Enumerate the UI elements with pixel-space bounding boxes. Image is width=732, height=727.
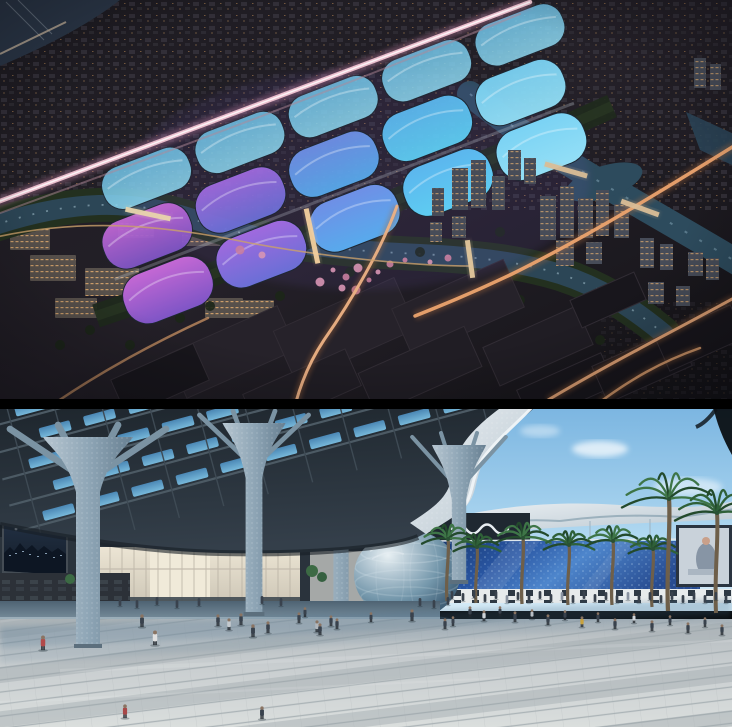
- person-body: [136, 600, 139, 608]
- person-shadow: [578, 627, 585, 629]
- person-body: [650, 623, 653, 629]
- person-shadow: [441, 629, 448, 631]
- person-leg: [268, 630, 269, 633]
- person-body: [261, 596, 264, 604]
- person-leg: [687, 630, 688, 633]
- person-leg: [43, 646, 45, 650]
- person-shadow: [302, 617, 308, 619]
- person-leg: [652, 628, 653, 631]
- column-base: [74, 644, 102, 648]
- person-body: [605, 592, 608, 600]
- person-head: [721, 624, 724, 627]
- person-shadow: [684, 633, 691, 635]
- person-body: [451, 591, 454, 599]
- person-head: [330, 615, 333, 618]
- person-body: [41, 639, 46, 647]
- person-head: [633, 613, 636, 616]
- person-leg: [547, 622, 548, 625]
- person-leg: [316, 629, 317, 632]
- person-head: [304, 607, 307, 610]
- person-body: [531, 612, 534, 617]
- person-leg: [304, 614, 305, 617]
- person-leg: [336, 626, 337, 629]
- person-leg: [499, 613, 500, 616]
- person-leg: [548, 622, 549, 625]
- person-leg: [319, 632, 320, 635]
- person-body: [260, 709, 264, 716]
- person-head: [266, 621, 269, 624]
- person-body: [669, 618, 672, 623]
- palm-crown: [446, 537, 450, 541]
- person-body: [239, 616, 243, 622]
- person-body: [482, 613, 485, 619]
- person-shadow: [316, 634, 324, 636]
- column-base: [450, 580, 468, 584]
- person-head: [315, 620, 318, 623]
- person-body: [468, 609, 471, 615]
- person-leg: [670, 622, 671, 625]
- person-body: [715, 592, 718, 600]
- person-shadow: [237, 624, 245, 626]
- person-body: [297, 615, 300, 621]
- person-shadow: [214, 625, 222, 627]
- person-leg: [581, 624, 582, 627]
- person-leg: [597, 619, 598, 622]
- person-body: [119, 598, 122, 606]
- person-head: [514, 611, 517, 614]
- person-head: [547, 614, 550, 617]
- person-body: [539, 591, 542, 599]
- person-leg: [320, 632, 321, 635]
- person-leg: [411, 618, 412, 621]
- person-leg: [598, 619, 599, 622]
- person-body: [227, 621, 231, 627]
- person-leg: [688, 630, 689, 633]
- person-body: [462, 593, 465, 601]
- person-shadow: [38, 649, 48, 652]
- person-leg: [469, 614, 470, 617]
- person-head: [123, 704, 127, 708]
- person-body: [506, 595, 509, 603]
- person-shadow: [718, 635, 725, 637]
- vignette: [0, 0, 732, 401]
- palm-trunk: [522, 538, 524, 604]
- person-leg: [262, 715, 263, 719]
- person-leg: [299, 620, 300, 623]
- person-body: [583, 591, 586, 599]
- person-body: [266, 624, 270, 630]
- person-leg: [370, 619, 371, 622]
- person-head: [239, 613, 242, 616]
- person-shadow: [258, 718, 266, 720]
- person-shadow: [562, 620, 568, 622]
- person-body: [704, 595, 707, 603]
- palm-trunk: [447, 539, 449, 601]
- person-body: [580, 619, 583, 625]
- person-leg: [614, 626, 615, 629]
- person-body: [613, 621, 616, 627]
- person-head: [216, 614, 219, 617]
- person-leg: [142, 623, 143, 627]
- person-leg: [251, 633, 252, 637]
- person-body: [251, 627, 255, 634]
- palm-crown: [567, 543, 571, 547]
- person-body: [616, 595, 619, 603]
- person-head: [260, 706, 263, 709]
- person-leg: [532, 616, 533, 619]
- palm-crown: [475, 545, 479, 549]
- person-shadow: [368, 622, 374, 624]
- person-shadow: [450, 626, 456, 628]
- person-leg: [153, 641, 155, 645]
- person-leg: [41, 646, 43, 650]
- person-body: [660, 595, 663, 603]
- person-shadow: [529, 619, 535, 621]
- person-leg: [228, 627, 229, 630]
- person-shadow: [264, 632, 272, 634]
- person-body: [686, 625, 689, 631]
- person-head: [370, 612, 373, 615]
- person-leg: [704, 624, 705, 627]
- person-head: [687, 622, 690, 625]
- cloud: [572, 441, 628, 457]
- person-body: [410, 612, 414, 618]
- person-leg: [484, 618, 485, 621]
- person-leg: [229, 627, 230, 630]
- person-body: [156, 597, 159, 605]
- person-body: [594, 594, 597, 602]
- panel-divider: [0, 399, 732, 403]
- person-leg: [564, 617, 565, 620]
- person-shadow: [511, 622, 518, 624]
- person-body: [140, 617, 144, 624]
- plaza-day-render: [0, 401, 732, 727]
- person-leg: [669, 622, 670, 625]
- person-shadow: [249, 636, 257, 638]
- person-shadow: [408, 620, 416, 622]
- person-body: [499, 609, 502, 614]
- person-shadow: [702, 627, 708, 629]
- person-body: [561, 592, 564, 600]
- person-leg: [240, 622, 241, 625]
- person-shadow: [121, 717, 130, 720]
- person-body: [153, 634, 158, 642]
- person-body: [550, 594, 553, 602]
- person-leg: [582, 624, 583, 627]
- person-body: [280, 598, 283, 606]
- person-leg: [412, 618, 413, 621]
- person-body: [473, 590, 476, 598]
- person-leg: [651, 628, 652, 631]
- person-head: [483, 610, 486, 613]
- person-leg: [445, 626, 446, 629]
- person-leg: [305, 614, 306, 617]
- person-body: [564, 613, 567, 618]
- person-leg: [125, 714, 126, 718]
- person-leg: [337, 626, 338, 629]
- person-leg: [267, 630, 268, 633]
- person-shadow: [631, 623, 637, 625]
- person-shadow: [595, 622, 601, 624]
- person-body: [335, 621, 338, 627]
- person-body: [419, 598, 422, 606]
- person-body: [198, 598, 201, 606]
- person-head: [531, 609, 534, 612]
- person-leg: [483, 618, 484, 621]
- person-leg: [253, 633, 254, 637]
- person-body: [546, 617, 549, 623]
- palm-crown: [651, 547, 655, 551]
- person-body: [638, 595, 641, 603]
- person-body: [370, 615, 373, 620]
- person-head: [227, 618, 230, 621]
- person-leg: [260, 715, 261, 719]
- person-shadow: [295, 623, 302, 625]
- person-body: [329, 618, 332, 624]
- palm-trunk: [612, 541, 614, 605]
- person-shadow: [611, 629, 618, 631]
- person-leg: [514, 619, 515, 622]
- person-leg: [155, 641, 157, 645]
- person-leg: [218, 623, 219, 626]
- person-body: [484, 594, 487, 602]
- person-leg: [241, 622, 242, 625]
- palm-crown: [667, 497, 671, 501]
- person-head: [564, 610, 567, 613]
- person-body: [693, 592, 696, 600]
- palm-trunk: [568, 545, 570, 605]
- person-head: [336, 618, 339, 621]
- palm-crown: [521, 536, 525, 540]
- person-body: [725, 595, 728, 603]
- person-leg: [217, 623, 218, 626]
- person-body: [304, 610, 307, 615]
- person-leg: [453, 623, 454, 626]
- person-leg: [721, 632, 722, 635]
- person-head: [651, 620, 654, 623]
- person-head: [499, 606, 502, 609]
- person-leg: [634, 620, 635, 623]
- person-leg: [371, 619, 372, 622]
- person-body: [704, 620, 707, 625]
- person-shadow: [648, 631, 655, 633]
- person-shadow: [150, 644, 160, 647]
- person-leg: [298, 620, 299, 623]
- person-body: [513, 614, 516, 620]
- person-body: [176, 600, 179, 608]
- person-head: [669, 615, 672, 618]
- person-leg: [330, 623, 331, 626]
- person-body: [671, 592, 674, 600]
- person-shadow: [480, 621, 487, 623]
- person-body: [216, 617, 220, 623]
- person-head: [597, 612, 600, 615]
- person-leg: [444, 626, 445, 629]
- person-leg: [123, 714, 124, 718]
- person-shadow: [667, 625, 673, 627]
- person-head: [469, 606, 472, 609]
- person-shadow: [333, 629, 340, 631]
- person-leg: [565, 617, 566, 620]
- person-leg: [705, 624, 706, 627]
- person-leg: [515, 619, 516, 622]
- person-body: [682, 595, 685, 603]
- person-body: [597, 615, 600, 620]
- person-leg: [615, 626, 616, 629]
- person-leg: [331, 623, 332, 626]
- palm-crown: [611, 539, 615, 543]
- billboard-screen: [676, 525, 732, 587]
- column-base: [244, 612, 265, 616]
- person-head: [581, 616, 584, 619]
- person-head: [41, 635, 45, 639]
- person-body: [572, 595, 575, 603]
- person-shadow: [466, 617, 473, 619]
- person-body: [123, 708, 127, 715]
- person-head: [452, 616, 455, 619]
- person-body: [528, 595, 531, 603]
- person-head: [153, 630, 157, 634]
- person-leg: [722, 632, 723, 635]
- person-shadow: [497, 616, 503, 618]
- person-body: [318, 626, 322, 632]
- person-body: [633, 616, 636, 621]
- person-head: [444, 618, 447, 621]
- person-body: [517, 592, 520, 600]
- person-body: [649, 592, 652, 600]
- person-head: [298, 612, 301, 615]
- palm-crown: [715, 511, 719, 515]
- person-head: [410, 609, 413, 612]
- aerial-night-render: [0, 0, 732, 401]
- person-head: [704, 617, 707, 620]
- person-shadow: [225, 629, 233, 631]
- cloud: [520, 425, 560, 437]
- two-panel-render: [0, 0, 732, 727]
- person-head: [140, 614, 143, 617]
- person-leg: [633, 620, 634, 623]
- person-body: [720, 627, 723, 633]
- person-body: [447, 597, 450, 605]
- person-body: [452, 619, 455, 624]
- person-body: [443, 621, 446, 627]
- person-shadow: [327, 626, 334, 628]
- person-leg: [140, 623, 141, 627]
- person-head: [251, 624, 254, 627]
- person-head: [318, 623, 321, 626]
- person-shadow: [138, 626, 146, 628]
- palm-trunk: [668, 499, 670, 611]
- person-body: [433, 600, 436, 608]
- person-head: [614, 618, 617, 621]
- person-body: [627, 592, 630, 600]
- person-shadow: [544, 625, 551, 627]
- person-leg: [470, 614, 471, 617]
- person-body: [495, 591, 498, 599]
- person-leg: [531, 616, 532, 619]
- person-leg: [500, 613, 501, 616]
- person-leg: [452, 623, 453, 626]
